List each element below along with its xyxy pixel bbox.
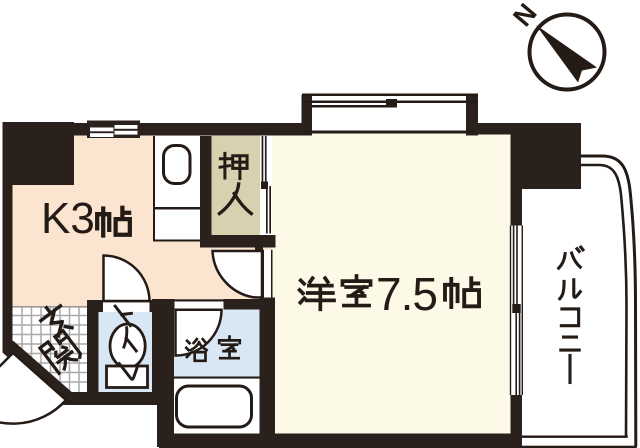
svg-text:K3: K3: [41, 194, 95, 243]
svg-text:7.5: 7.5: [376, 268, 437, 320]
